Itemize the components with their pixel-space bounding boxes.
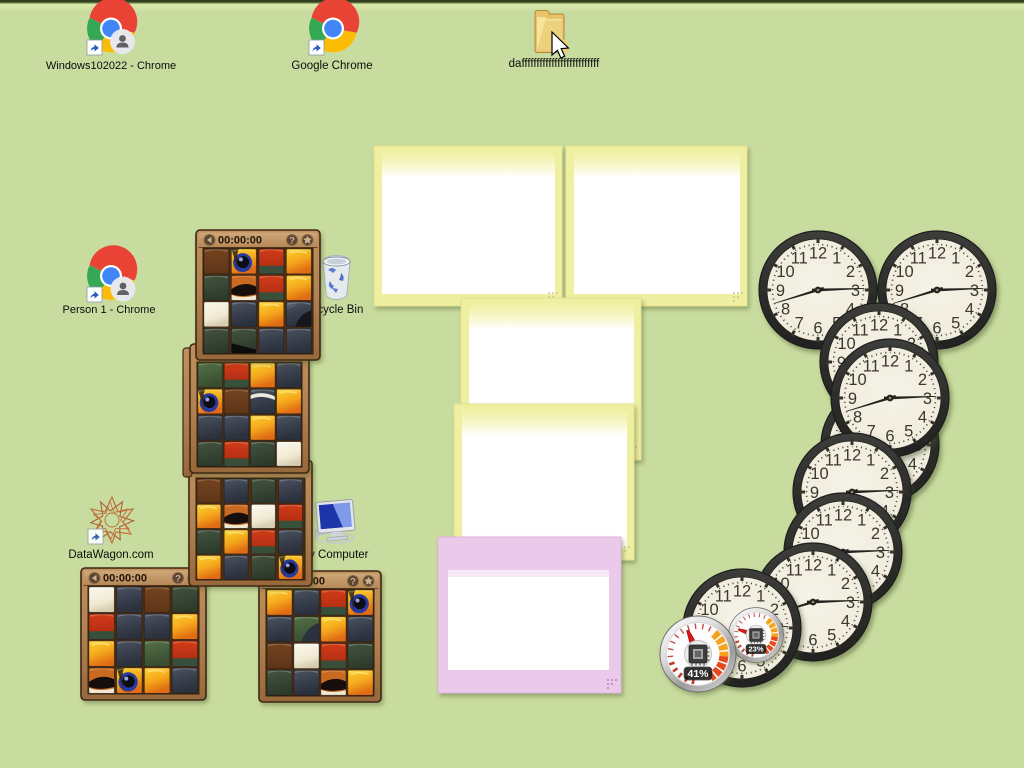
svg-text:Google Chrome: Google Chrome [291,60,372,72]
svg-text:?: ? [289,236,295,247]
svg-text:daffffffffffffffffffffffffff: daffffffffffffffffffffffffff [509,58,600,70]
svg-text:23%: 23% [748,645,763,654]
svg-text:?: ? [350,577,356,588]
svg-text:DataWagon.com: DataWagon.com [68,549,153,561]
svg-text:00:00:00: 00:00:00 [218,235,262,247]
svg-text:41%: 41% [687,668,709,680]
svg-text:00:00:00: 00:00:00 [103,573,147,585]
svg-text:?: ? [175,574,181,585]
svg-text:Person 1 - Chrome: Person 1 - Chrome [63,304,156,316]
svg-text:Windows102022 - Chrome: Windows102022 - Chrome [46,60,176,72]
